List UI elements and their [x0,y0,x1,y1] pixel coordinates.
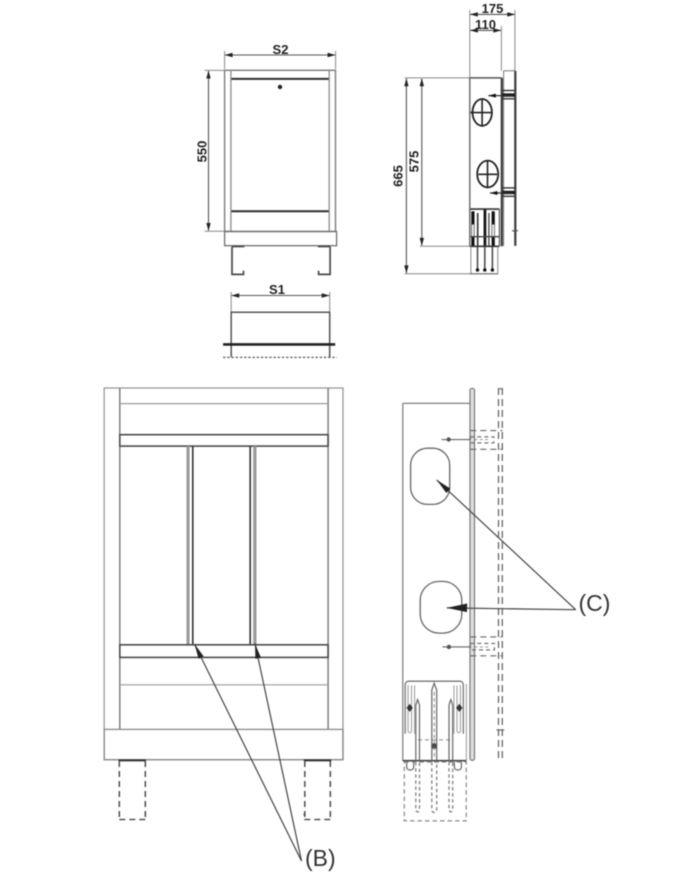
svg-text:665: 665 [391,165,406,187]
svg-text:(C): (C) [579,590,611,616]
svg-text:175: 175 [482,1,504,16]
svg-text:575: 575 [406,151,421,173]
svg-text:(B): (B) [305,845,336,871]
svg-text:550: 550 [195,141,210,163]
svg-text:110: 110 [475,17,496,32]
svg-text:S1: S1 [269,282,285,297]
